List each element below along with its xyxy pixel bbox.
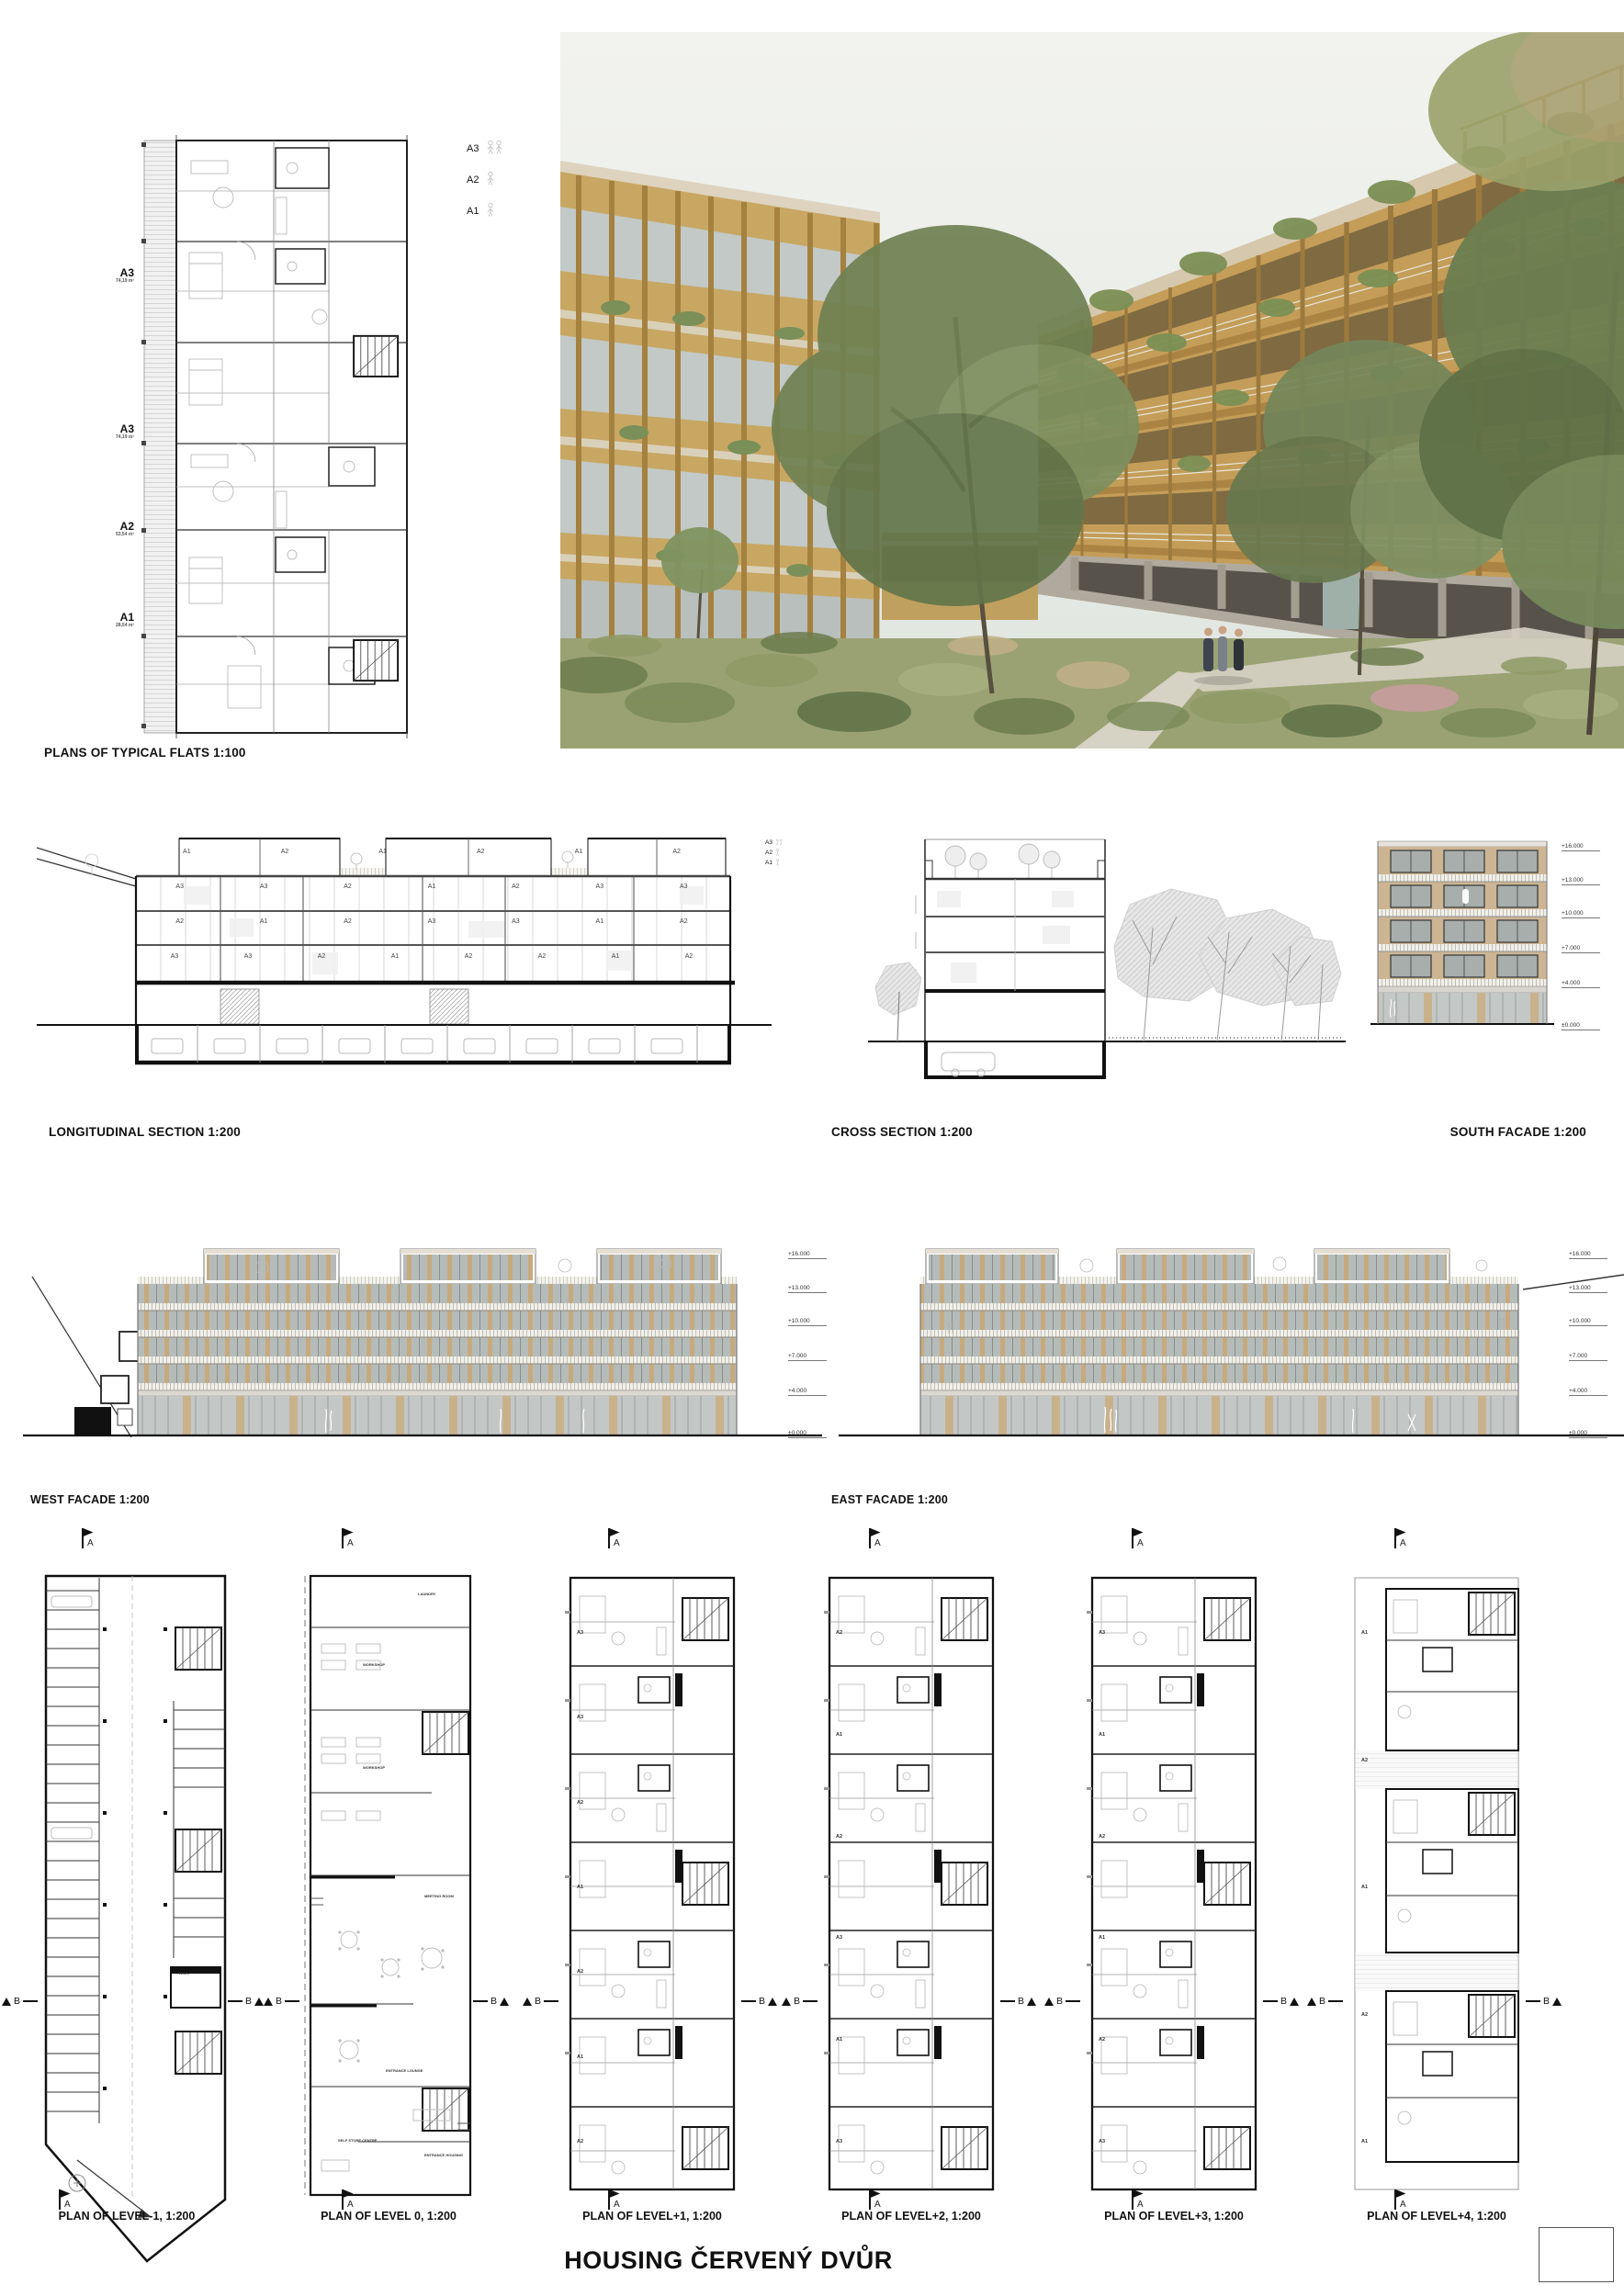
section-marker-a: A — [78, 1528, 106, 1565]
arrow-icon — [2, 1998, 11, 2006]
people-figures — [1203, 626, 1244, 672]
cross-section-drawing — [868, 808, 1346, 1084]
person-icon — [775, 859, 780, 866]
section-marker-b: B — [473, 1995, 509, 2008]
flag-icon — [344, 1528, 354, 1537]
typical-flats-plan-drawing — [136, 133, 412, 739]
flag-icon — [610, 1528, 620, 1537]
room-label: ENTRANCE HOUSING — [424, 2153, 463, 2157]
flag-icon — [1396, 1528, 1406, 1537]
room-label: LAUNDRY — [418, 1592, 435, 1596]
plan-0-title: PLAN OF LEVEL 0, 1:200 — [321, 2210, 457, 2223]
section-legend: A3 A2 A1 — [765, 838, 784, 866]
arrow-icon — [782, 1998, 791, 2006]
presentation-board: A3 74,19 m² A3 74,19 m² A2 53,54 m² A1 2… — [0, 0, 1624, 2296]
section-marker-b: B — [1263, 1995, 1299, 2008]
plan-minus1-title: PLAN OF LEVEL-1, 1:200 — [59, 2210, 196, 2223]
room-label: WORKSHOP — [363, 1662, 385, 1667]
section-marker-b: B — [2, 1995, 38, 2008]
south-facade-drawing — [1370, 836, 1554, 1029]
section-marker-b: B — [523, 1995, 558, 2008]
flag-icon — [610, 2189, 620, 2199]
section-marker-b: B — [782, 1995, 818, 2008]
plan4-unit-labels: A1A2A1A2A1 — [1361, 1630, 1385, 2144]
room-label: WORKSHOP — [363, 1765, 385, 1770]
section-marker-b: B — [741, 1995, 777, 2008]
flag-icon — [871, 1528, 881, 1537]
room-label: ENTRANCE LOUNGE — [386, 2068, 423, 2073]
west-facade-title: WEST FACADE 1:200 — [30, 1493, 150, 1506]
title-block — [1539, 2227, 1614, 2282]
plan-level-0-drawing — [303, 1572, 478, 2199]
room-label: MEETING ROOM — [424, 1894, 454, 1898]
section-units-row-1: A3A3A2A1A2A2A1A2 — [138, 951, 726, 962]
plan-plus4-title: PLAN OF LEVEL+4, 1:200 — [1367, 2210, 1506, 2223]
section-marker-a: A — [338, 1528, 366, 1565]
two-persons-icon — [486, 140, 504, 158]
plan-plus2-title: PLAN OF LEVEL+2, 1:200 — [841, 2210, 981, 2223]
plan2-unit-labels: A2A1A2A3A1A3 — [836, 1630, 860, 2144]
person-icon — [486, 171, 495, 189]
section-marker-a: A — [1128, 1528, 1156, 1565]
person-icon — [486, 202, 495, 220]
legend-label: A1 — [467, 206, 479, 217]
arrow-icon — [1307, 1998, 1316, 2006]
section-marker-a: A — [865, 1528, 893, 1565]
arrow-icon — [1027, 1998, 1036, 2006]
typical-flats-title: PLANS OF TYPICAL FLATS 1:100 — [44, 746, 246, 760]
section-marker-a: A — [604, 1528, 632, 1565]
flag-icon — [61, 2189, 71, 2199]
arrow-icon — [768, 1998, 777, 2006]
section-marker-a: A — [1391, 1528, 1418, 1565]
typical-flats-unit-labels: A3 74,19 m² A3 74,19 m² A2 53,54 m² A1 2… — [79, 133, 134, 647]
east-facade-drawing — [839, 1242, 1624, 1448]
arrow-icon — [264, 1998, 273, 2006]
two-persons-icon — [775, 838, 784, 846]
section-units-row-3: A3A3A2A1A2A3A3 — [138, 881, 726, 892]
section-marker-b: B — [1000, 1995, 1036, 2008]
room-label: SELF STORE CENTRE — [338, 2138, 378, 2143]
east-facade-title: EAST FACADE 1:200 — [831, 1493, 948, 1506]
section-units-row-2: A2A1A2A3A3A1A2 — [138, 916, 726, 927]
unit-label: A3 74,19 m² — [116, 424, 134, 440]
unit-label: A1 28,54 m² — [116, 613, 134, 628]
legend-label: A2 — [467, 174, 479, 186]
flag-icon — [1133, 2189, 1144, 2199]
legend-row-a3: A3 — [467, 140, 504, 158]
unit-label: A3 74,19 m² — [116, 268, 134, 284]
legend-row-a2: A2 — [467, 171, 504, 189]
arrow-icon — [1044, 1998, 1054, 2006]
arrow-icon — [254, 1998, 264, 2006]
flag-icon — [1133, 1528, 1144, 1537]
unit-label: A2 53,54 m² — [116, 522, 134, 537]
project-title: HOUSING ČERVENÝ DVŮR — [564, 2246, 893, 2275]
plan-level-minus1-drawing — [40, 1572, 230, 2265]
plan-plus1-title: PLAN OF LEVEL+1, 1:200 — [582, 2210, 722, 2223]
plan3-unit-labels: A3A1A2A1A2A3 — [1099, 1630, 1122, 2144]
room-label: TECH. — [178, 1971, 189, 1975]
legend-row-a1: A1 — [467, 202, 504, 220]
section-marker-b: B — [1044, 1995, 1080, 2008]
longitudinal-section-title: LONGITUDINAL SECTION 1:200 — [49, 1125, 241, 1139]
flag-icon — [871, 2189, 881, 2199]
flag-icon — [344, 2189, 354, 2199]
section-marker-b: B — [228, 1995, 264, 2008]
south-facade-title: SOUTH FACADE 1:200 — [1433, 1125, 1586, 1139]
west-facade-drawing — [23, 1242, 822, 1448]
arrow-icon — [523, 1998, 532, 2006]
plan-plus3-title: PLAN OF LEVEL+3, 1:200 — [1104, 2210, 1244, 2223]
section-marker-b: B — [1307, 1995, 1343, 2008]
arrow-icon — [500, 1998, 509, 2006]
courtyard-rendering — [560, 32, 1624, 748]
section-marker-b: B — [264, 1995, 299, 2008]
section-units-row-4: A1A2A1A2A1A2 — [138, 846, 726, 857]
legend-label: A3 — [467, 143, 479, 154]
arrow-icon — [1290, 1998, 1299, 2006]
person-icon — [775, 849, 780, 856]
plan1-unit-labels: A3A3A2A1A2A1A2 — [577, 1630, 601, 2144]
arrow-icon — [1552, 1998, 1562, 2006]
flag-icon — [84, 1528, 94, 1537]
section-marker-b: B — [1526, 1995, 1562, 2008]
flat-type-legend: A3 A2 A1 — [467, 140, 504, 220]
cross-section-title: CROSS SECTION 1:200 — [831, 1125, 973, 1139]
flag-icon — [1396, 2189, 1406, 2199]
